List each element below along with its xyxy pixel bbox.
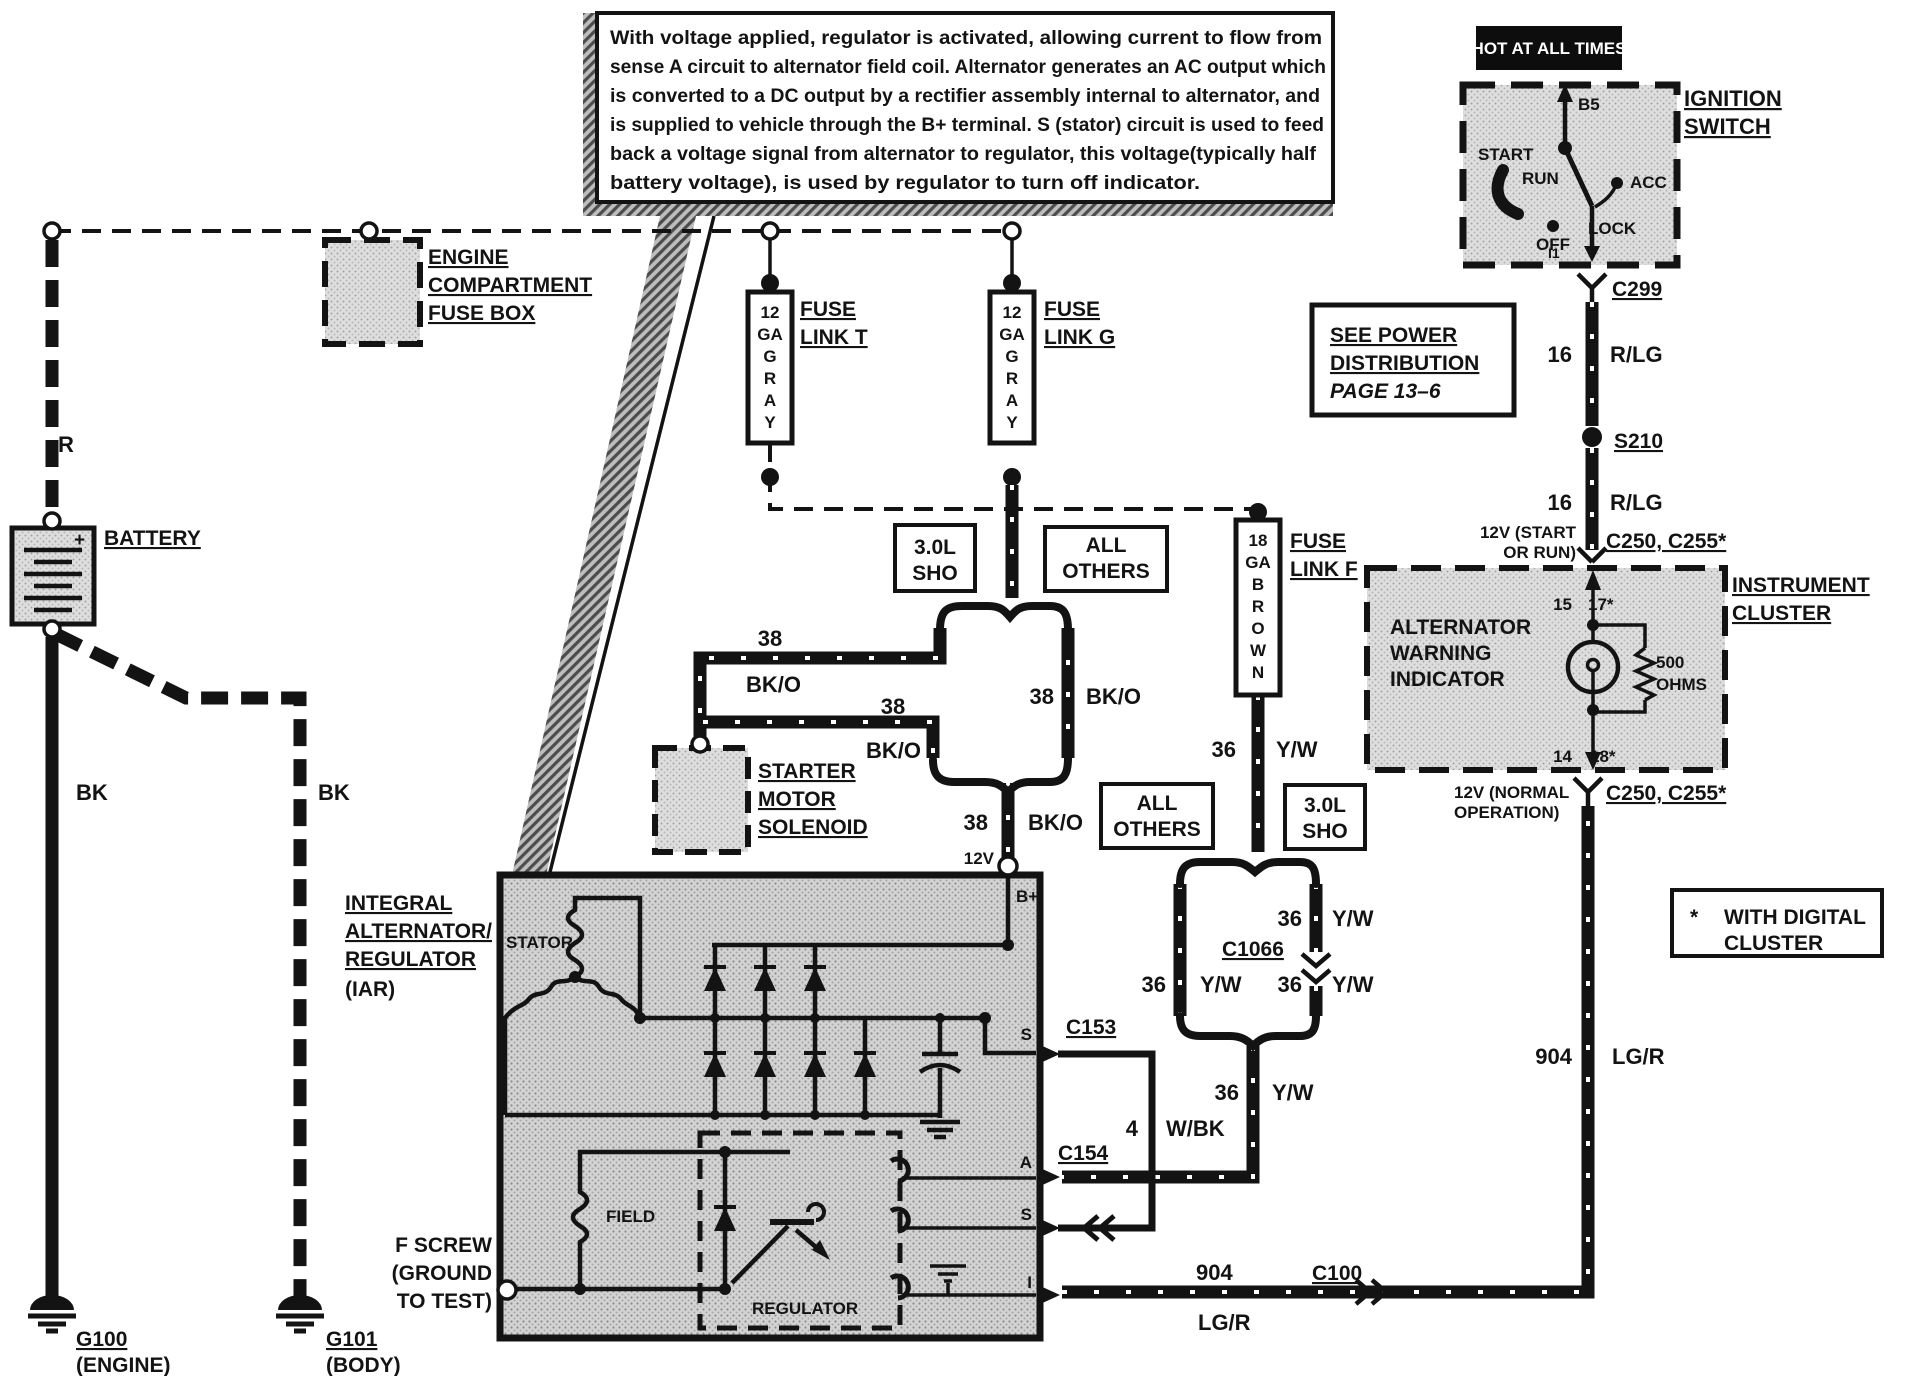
fuse-t-g1: GA bbox=[757, 325, 783, 344]
diagram-page: With voltage applied, regulator is activ… bbox=[0, 0, 1928, 1376]
connector-c1066: C1066 bbox=[1222, 938, 1284, 961]
ignition-start: START bbox=[1478, 145, 1534, 164]
fuse-f-g1: GA bbox=[1245, 553, 1271, 572]
fuse-f-g2: B bbox=[1252, 575, 1264, 594]
others2-line2: OTHERS bbox=[1113, 818, 1201, 841]
others2-line1: ALL bbox=[1137, 792, 1178, 815]
fuse-f-g3: R bbox=[1252, 597, 1264, 616]
cluster-title-2: CLUSTER bbox=[1732, 602, 1831, 625]
fscrew-label-2: (GROUND bbox=[392, 1262, 492, 1285]
sho1-line1: 3.0L bbox=[914, 536, 956, 559]
lgr-vert: LG/R bbox=[1612, 1044, 1665, 1069]
fscrew-label-3: TO TEST) bbox=[397, 1290, 492, 1313]
ground-g100-sub: (ENGINE) bbox=[76, 1354, 171, 1376]
indicator-label-1: ALTERNATOR bbox=[1390, 616, 1531, 639]
fuse-f-g0: 18 bbox=[1249, 531, 1268, 550]
fuse-g-g1: GA bbox=[999, 325, 1025, 344]
ground-g101-sub: (BODY) bbox=[326, 1354, 401, 1376]
digital-note-1: WITH DIGITAL bbox=[1724, 906, 1866, 929]
stator-label: STATOR bbox=[506, 933, 573, 952]
callout-line-4: is supplied to vehicle through the B+ te… bbox=[610, 115, 1324, 136]
ground-g100-symbol bbox=[28, 1295, 76, 1331]
connector-c250-bottom: C250, C255* bbox=[1606, 782, 1727, 805]
splice-s210: S210 bbox=[1614, 430, 1663, 453]
w38-2: 38 bbox=[881, 694, 905, 719]
ignition-title-2: SWITCH bbox=[1684, 114, 1771, 139]
wire-bk-left-label: BK bbox=[76, 780, 108, 805]
callout-line-3: is converted to a DC output by a rectifi… bbox=[610, 86, 1320, 107]
fuse-g-g4: A bbox=[1006, 391, 1018, 410]
v12-bplus: 12V bbox=[964, 849, 995, 868]
wire-rlg-color-1: R/LG bbox=[1610, 342, 1663, 367]
w36-5: 36 bbox=[1215, 1080, 1239, 1105]
connector-c299: C299 bbox=[1612, 278, 1662, 301]
w38-3: 38 bbox=[1030, 684, 1054, 709]
fuse-g-g5: Y bbox=[1006, 413, 1018, 432]
ground-g101-symbol bbox=[276, 1295, 324, 1331]
engine-fuse-box-label-2: COMPARTMENT bbox=[428, 274, 592, 297]
fuse-f-g4: O bbox=[1251, 619, 1264, 638]
digital-note-2: CLUSTER bbox=[1724, 932, 1823, 955]
bko-1: BK/O bbox=[746, 672, 801, 697]
solenoid-label-2: MOTOR bbox=[758, 788, 836, 811]
fuse-g-title-1: FUSE bbox=[1044, 298, 1100, 321]
connector-c100: C100 bbox=[1312, 1262, 1362, 1285]
pin-17: 17* bbox=[1588, 595, 1614, 614]
solenoid-label-3: SOLENOID bbox=[758, 816, 868, 839]
alternator-title-4: (IAR) bbox=[345, 978, 395, 1001]
callout-line-6: battery voltage), is used by regulator t… bbox=[610, 173, 1200, 194]
fuse-g-g0: 12 bbox=[1003, 303, 1022, 322]
splice-s210-symbol bbox=[1582, 427, 1602, 447]
callout-line-2: sense A circuit to alternator field coil… bbox=[610, 57, 1326, 78]
fuse-t-g4: A bbox=[764, 391, 776, 410]
others1-line1: ALL bbox=[1086, 534, 1127, 557]
battery-circuit bbox=[12, 240, 324, 1331]
bko-3: BK/O bbox=[1086, 684, 1141, 709]
connector-c154: C154 bbox=[1058, 1142, 1109, 1165]
wire-16-gauge-1: 16 bbox=[1548, 342, 1572, 367]
callout-note: With voltage applied, regulator is activ… bbox=[597, 13, 1333, 202]
v12-normal-1: 12V (NORMAL bbox=[1454, 783, 1569, 802]
pin-14: 14 bbox=[1553, 747, 1572, 766]
terminal-s2: S bbox=[1021, 1205, 1032, 1224]
ignition-acc: ACC bbox=[1630, 173, 1667, 192]
fuse-t-g5: Y bbox=[764, 413, 776, 432]
w904-vert: 904 bbox=[1535, 1044, 1572, 1069]
alternator-symbol bbox=[498, 857, 1060, 1338]
w4-gauge: 4 bbox=[1126, 1116, 1139, 1141]
w36-1: 36 bbox=[1212, 737, 1236, 762]
wire-bk-body bbox=[56, 634, 300, 1302]
yw-1: Y/W bbox=[1276, 737, 1318, 762]
callout-line-5: back a voltage signal from alternator to… bbox=[610, 144, 1317, 165]
yw-2: Y/W bbox=[1200, 972, 1242, 997]
ignition-off: OFF bbox=[1536, 235, 1570, 254]
terminal-s1: S bbox=[1021, 1025, 1032, 1044]
regulator-label: REGULATOR bbox=[752, 1299, 858, 1318]
battery-label: BATTERY bbox=[104, 527, 201, 550]
w38-4: 38 bbox=[964, 810, 988, 835]
fuse-f-g5: W bbox=[1250, 641, 1267, 660]
w36-4: 36 bbox=[1278, 972, 1302, 997]
bko-4: BK/O bbox=[1028, 810, 1083, 835]
yw-5: Y/W bbox=[1272, 1080, 1314, 1105]
fuse-f-title-1: FUSE bbox=[1290, 530, 1346, 553]
w36-3: 36 bbox=[1278, 906, 1302, 931]
alternator-title-3: REGULATOR bbox=[345, 948, 476, 971]
indicator-label-2: WARNING bbox=[1390, 642, 1492, 665]
battery-plus: + bbox=[74, 530, 85, 551]
wire-bk-right-label: BK bbox=[318, 780, 350, 805]
fscrew-label-1: F SCREW bbox=[395, 1234, 492, 1257]
fuse-t-g2: G bbox=[763, 347, 776, 366]
sho2-line1: 3.0L bbox=[1304, 794, 1346, 817]
v12-start-2: OR RUN) bbox=[1503, 543, 1576, 562]
cluster-title-1: INSTRUMENT bbox=[1732, 574, 1870, 597]
engine-fuse-box-symbol bbox=[325, 240, 420, 344]
hot-tag-label: HOT AT ALL TIMES bbox=[1472, 39, 1627, 58]
wire-16-gauge-2: 16 bbox=[1548, 490, 1572, 515]
fuse-f-g6: N bbox=[1252, 663, 1264, 682]
resistor-value-1: 500 bbox=[1656, 653, 1684, 672]
power-note-1: SEE POWER bbox=[1330, 324, 1457, 347]
solenoid-label-1: STARTER bbox=[758, 760, 856, 783]
v12-start-1: 12V (START bbox=[1480, 523, 1577, 542]
indicator-label-3: INDICATOR bbox=[1390, 668, 1505, 691]
wbk-color: W/BK bbox=[1166, 1116, 1225, 1141]
ignition-b5: B5 bbox=[1578, 95, 1600, 114]
alternator-wiring-diagram: With voltage applied, regulator is activ… bbox=[0, 0, 1928, 1376]
terminal-bplus: B+ bbox=[1016, 887, 1038, 906]
lgr-bottom: LG/R bbox=[1198, 1310, 1251, 1335]
w38-1: 38 bbox=[758, 626, 782, 651]
power-note-3: PAGE 13–6 bbox=[1330, 380, 1441, 403]
others1-line2: OTHERS bbox=[1062, 560, 1150, 583]
sho2-line2: SHO bbox=[1302, 820, 1348, 843]
fuse-g-title-2: LINK G bbox=[1044, 326, 1115, 349]
power-note-2: DISTRIBUTION bbox=[1330, 352, 1479, 375]
wire-rlg-color-2: R/LG bbox=[1610, 490, 1663, 515]
ground-g101-label: G101 bbox=[326, 1328, 378, 1351]
resistor-value-2: OHMS bbox=[1656, 675, 1707, 694]
terminal-i: I bbox=[1027, 1273, 1032, 1292]
connector-c153: C153 bbox=[1066, 1016, 1116, 1039]
w36-2: 36 bbox=[1142, 972, 1166, 997]
w904-bottom: 904 bbox=[1196, 1260, 1233, 1285]
yw-3: Y/W bbox=[1332, 906, 1374, 931]
fuse-t-title-2: LINK T bbox=[800, 326, 868, 349]
sho1-line2: SHO bbox=[912, 562, 958, 585]
v12-normal-2: OPERATION) bbox=[1454, 803, 1559, 822]
fuse-t-g3: R bbox=[764, 369, 776, 388]
engine-fuse-box-label-3: FUSE BOX bbox=[428, 302, 535, 325]
alternator-title-2: ALTERNATOR/ bbox=[345, 920, 492, 943]
connector-c250-top: C250, C255* bbox=[1606, 530, 1727, 553]
digital-note-star: * bbox=[1690, 906, 1699, 929]
ignition-title-1: IGNITION bbox=[1684, 86, 1782, 111]
fuse-g-g2: G bbox=[1005, 347, 1018, 366]
fuse-g-g3: R bbox=[1006, 369, 1018, 388]
yw-4: Y/W bbox=[1332, 972, 1374, 997]
wire-r-label: R bbox=[58, 432, 74, 457]
starter-solenoid-symbol bbox=[655, 748, 748, 852]
fuse-t-title-1: FUSE bbox=[800, 298, 856, 321]
engine-fuse-box-label-1: ENGINE bbox=[428, 246, 509, 269]
callout-line-1: With voltage applied, regulator is activ… bbox=[610, 28, 1322, 49]
terminal-a: A bbox=[1020, 1153, 1032, 1172]
ground-g100-label: G100 bbox=[76, 1328, 127, 1351]
fuse-t-g0: 12 bbox=[761, 303, 780, 322]
ignition-lock: LOCK bbox=[1588, 219, 1637, 238]
field-label: FIELD bbox=[606, 1207, 655, 1226]
pin-15: 15 bbox=[1553, 595, 1572, 614]
bko-2: BK/O bbox=[866, 738, 921, 763]
ignition-run: RUN bbox=[1522, 169, 1559, 188]
fuse-f-title-2: LINK F bbox=[1290, 558, 1358, 581]
pin-18: 18* bbox=[1590, 747, 1616, 766]
alternator-title-1: INTEGRAL bbox=[345, 892, 453, 915]
